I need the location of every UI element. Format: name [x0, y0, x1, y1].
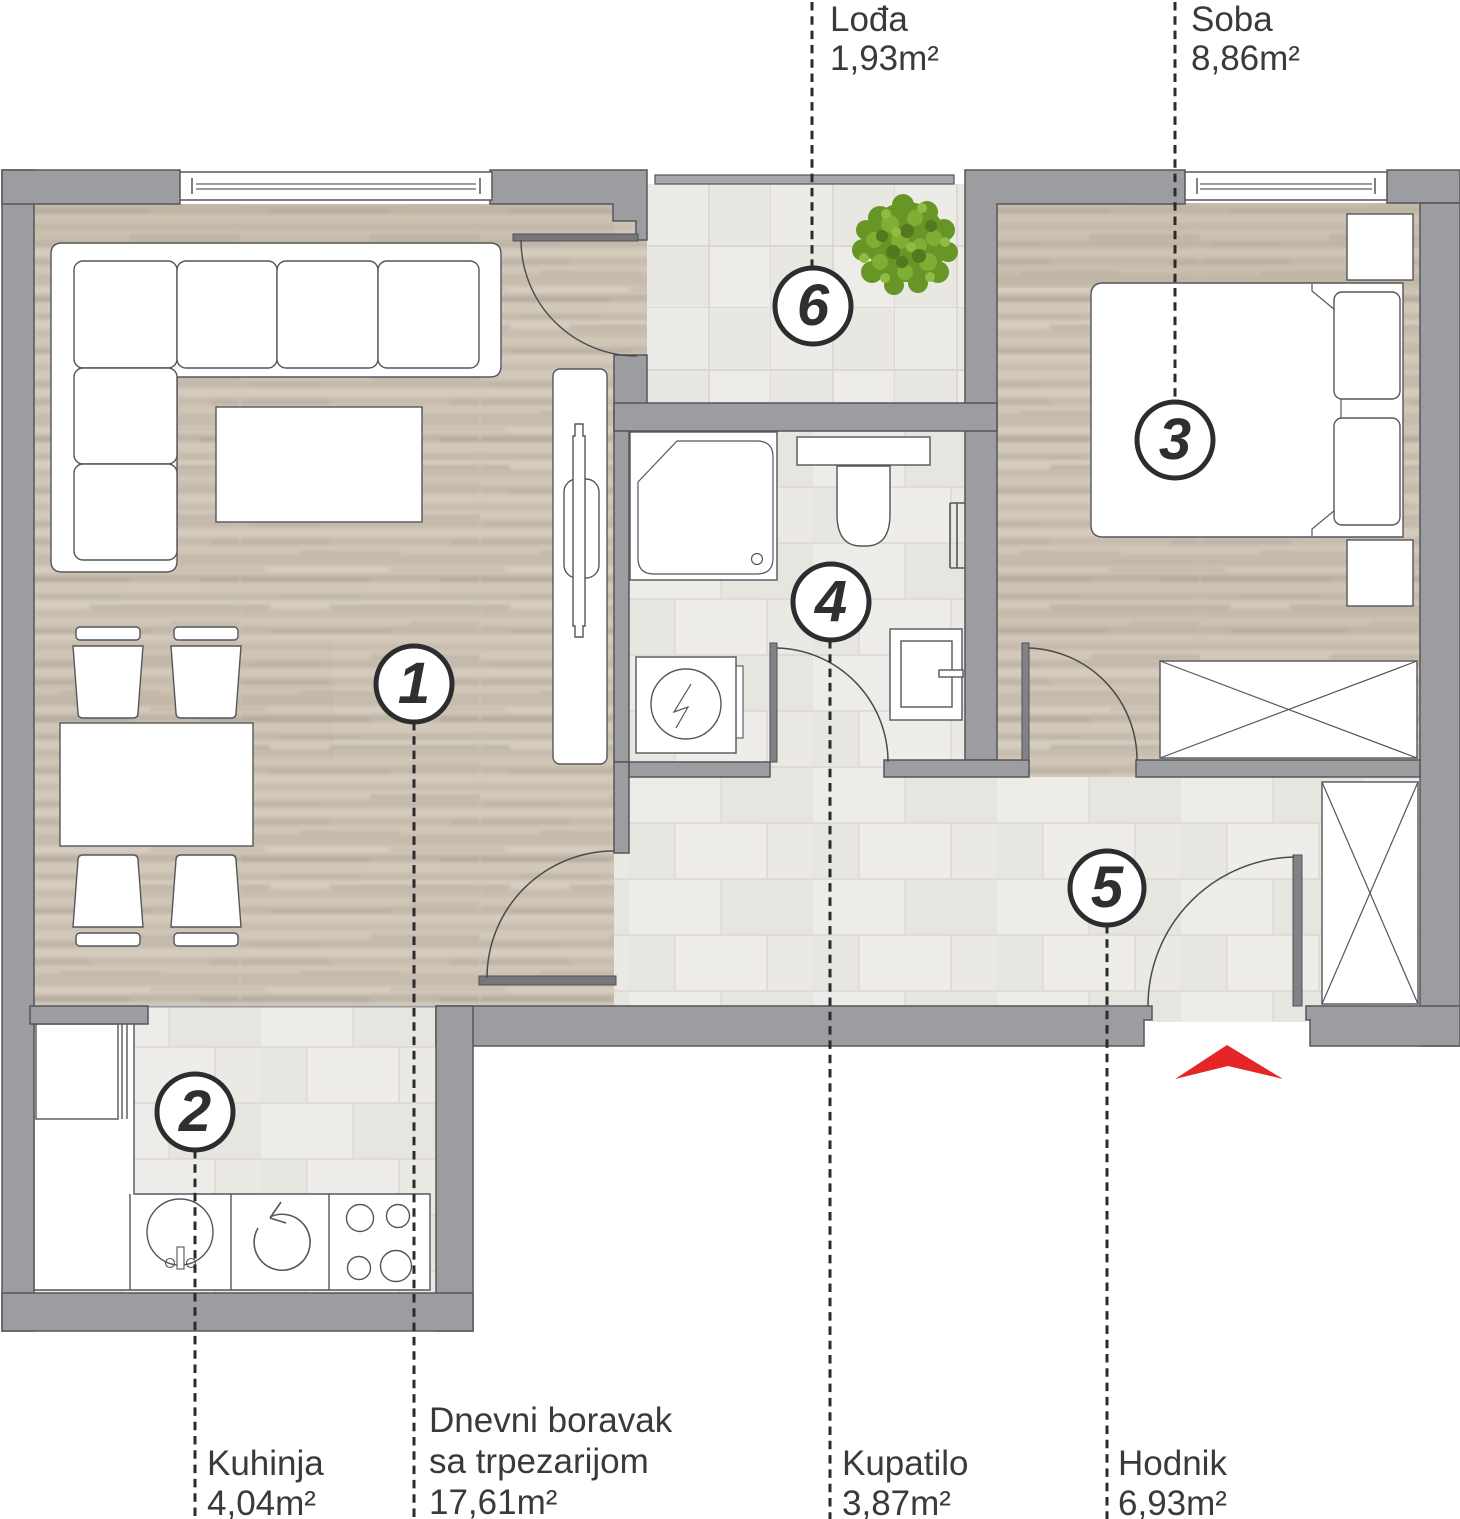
- svg-text:sa trpezarijom: sa trpezarijom: [429, 1442, 649, 1481]
- svg-text:3,87m²: 3,87m²: [842, 1484, 951, 1519]
- svg-text:2: 2: [178, 1079, 211, 1144]
- svg-text:4: 4: [814, 569, 847, 634]
- svg-text:Soba: Soba: [1191, 0, 1273, 39]
- svg-text:5: 5: [1091, 855, 1124, 920]
- svg-text:6: 6: [797, 273, 830, 338]
- svg-text:17,61m²: 17,61m²: [429, 1483, 557, 1519]
- svg-text:Kupatilo: Kupatilo: [842, 1444, 968, 1483]
- svg-text:Lođa: Lođa: [830, 0, 908, 39]
- svg-text:6,93m²: 6,93m²: [1118, 1484, 1227, 1519]
- svg-text:1,93m²: 1,93m²: [830, 39, 939, 78]
- svg-text:Hodnik: Hodnik: [1118, 1444, 1227, 1483]
- svg-text:3: 3: [1159, 407, 1191, 472]
- svg-text:8,86m²: 8,86m²: [1191, 39, 1300, 78]
- svg-text:Kuhinja: Kuhinja: [207, 1444, 324, 1483]
- svg-text:4,04m²: 4,04m²: [207, 1484, 316, 1519]
- svg-text:Dnevni boravak: Dnevni boravak: [429, 1401, 673, 1440]
- svg-text:1: 1: [398, 651, 430, 716]
